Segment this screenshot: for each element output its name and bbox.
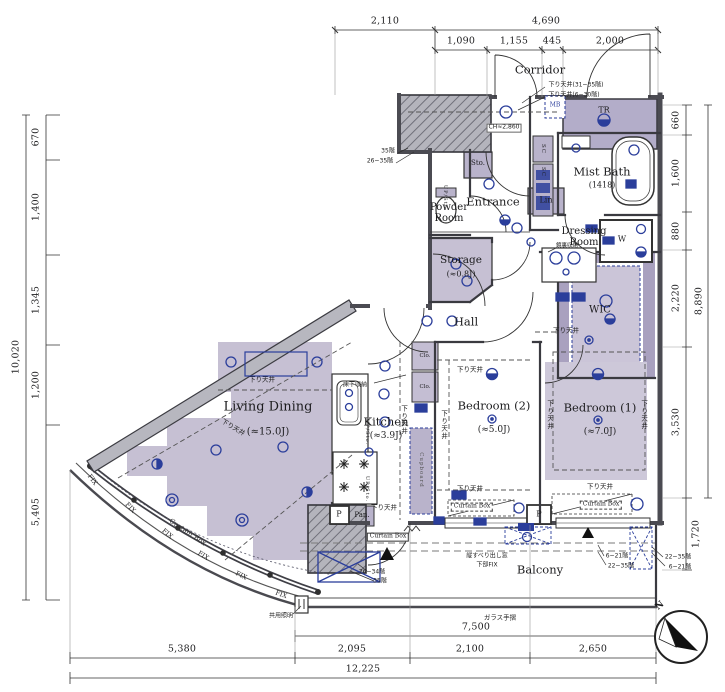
glass-rail-label: ガラス手摺 (484, 614, 516, 621)
room-size-kitchen: (≈3.9J) (370, 431, 402, 441)
room-label-tr: TR (598, 107, 609, 116)
dim-bottom-glass: 7,500 (462, 623, 490, 634)
room-label-clo-1: Clo. (420, 353, 431, 359)
note-ceiling-height: CH≈2,860 (487, 124, 522, 133)
north-compass (655, 611, 707, 663)
room-size-bed1: (≈7.0J) (584, 427, 616, 437)
room-label-wic: WIC (589, 304, 611, 315)
room-label-clo-2: Clo. (420, 384, 431, 390)
dim-right-5: 3,530 (672, 408, 683, 436)
note-casement-window: 縦すべり出し窓 (466, 554, 508, 561)
curtain-box-bed1: Curtain Box (580, 501, 622, 510)
dim-left-4: 1,200 (32, 371, 43, 399)
note-drop-ceiling-kitchen: 下り天井 (399, 405, 406, 435)
room-label-mist-bath: Mist Bath (574, 166, 631, 179)
curtain-box-bed2: Curtain Box (451, 503, 493, 512)
room-label-hall: Hall (454, 316, 478, 329)
dim-top-sub-2: 1,155 (500, 37, 528, 48)
dim-right-balcony: 1,720 (692, 520, 703, 548)
dim-bottom-sub-2: 2,095 (338, 645, 366, 656)
note-drop-ceiling-kitchen-bottom: 下り天井 (371, 504, 397, 511)
dim-bottom-sub-4: 2,650 (579, 645, 607, 656)
dim-top-left: 2,110 (371, 17, 399, 28)
room-size-bed2: (≈5.0J) (478, 425, 510, 435)
room-size-living: (≈15.0J) (247, 426, 289, 437)
note-drop-ceiling-bed1-left: 下り天井 (545, 400, 552, 430)
room-label-cupboard: Cupboard (418, 452, 424, 488)
room-label-pillar-2: P (536, 511, 541, 520)
label-up-sto-3: UP/Sto. (363, 476, 369, 502)
note-drop-ceiling-bed2-bottom: 下り天井 (457, 485, 483, 492)
room-label-washer: W (618, 236, 626, 245)
room-label-lin: Lin (539, 197, 552, 206)
room-label-pillar-1: P (336, 511, 341, 520)
room-label-sto: Sto. (471, 160, 485, 168)
dim-left-5: 5,405 (32, 498, 43, 526)
note-floor-22-35-right: 22~35階 (665, 555, 691, 562)
note-floor-22-35-left: 22~35階 (608, 564, 634, 571)
note-common-light: 共用照明 (269, 614, 293, 621)
dim-top-sub-1: 1,090 (447, 37, 475, 48)
room-label-powder: Powder Room (422, 202, 476, 224)
note-drop-ceiling-bed2-top: 下り天井 (457, 366, 483, 373)
note-floor-35-top: 35階 (381, 149, 395, 156)
note-drop-ceiling-bed2-left: 下り天井 (439, 410, 446, 440)
dim-top-sub-3: 445 (543, 37, 562, 48)
dim-right-4: 2,220 (672, 284, 683, 312)
note-drop-ceiling-bed1-bottom: 下り天井 (587, 483, 613, 490)
note-lower-fix: 下部FIX (476, 563, 497, 570)
room-label-living: Living Dining (224, 401, 313, 416)
note-floor-6-21-right: 6~21階 (669, 565, 691, 572)
note-mirror-storage: 鏡裏収納 (556, 243, 578, 249)
dim-top-right: 4,690 (532, 17, 560, 28)
note-underfloor-storage: 床下収納 (343, 383, 367, 390)
room-label-bed2: Bedroom (2) (458, 400, 531, 413)
note-floor-26-34: 26~34階 (359, 570, 385, 577)
room-size-storage: (≈0.8J) (447, 271, 476, 280)
dim-right-2: 1,600 (672, 159, 683, 187)
note-floor-35-bottom: 35階 (373, 579, 387, 586)
note-drop-ceiling-lo: 下り天井(6~30階) (548, 93, 599, 100)
room-label-storage: Storage (440, 255, 482, 267)
room-label-pantry: Pan. (354, 512, 369, 520)
dim-right-3: 880 (672, 222, 683, 241)
label-up-sto-2: UP/Sto. (363, 419, 369, 445)
note-drop-ceiling-ld-top: 下り天井 (249, 376, 275, 383)
note-drop-ceiling-hall: 下り天井 (553, 327, 579, 334)
dim-right-1: 660 (672, 111, 683, 130)
room-label-balcony: Balcony (517, 564, 563, 577)
dim-left-3: 1,345 (32, 286, 43, 314)
dim-left-total: 10,020 (12, 340, 23, 374)
dim-top-sub-4: 2,000 (596, 37, 624, 48)
dim-bottom-total: 12,225 (346, 665, 380, 676)
room-label-corridor: Corridor (515, 64, 565, 77)
floor-plan: 2,110 4,690 1,090 1,155 445 2,000 670 1,… (0, 0, 725, 692)
room-label-bed1: Bedroom (1) (564, 402, 637, 415)
dim-left-1: 670 (32, 128, 43, 147)
dim-left-2: 1,400 (32, 193, 43, 221)
dim-bottom-sub-1: 5,380 (168, 645, 196, 656)
curtain-box-kitchen: Curtain Box (367, 533, 409, 542)
room-label-sc-1: SC (540, 144, 546, 154)
dim-right-total: 8,890 (695, 287, 706, 315)
room-label-sc-2: SC (540, 167, 546, 177)
label-up-sto-1: UP/Sto. (441, 185, 447, 211)
note-drop-ceiling-hi: 下り天井(31~35階) (549, 83, 604, 90)
room-size-mist-bath: (1418) (589, 182, 616, 191)
dim-bottom-sub-3: 2,100 (456, 645, 484, 656)
note-drop-ceiling-bed1-right: 下り天井 (639, 400, 646, 430)
note-floor-26-35: 26~35階 (367, 159, 393, 166)
room-label-mb: MB (550, 103, 561, 110)
note-floor-6-21-left: 6~21階 (606, 554, 628, 561)
floorplan-drawing (0, 0, 725, 692)
